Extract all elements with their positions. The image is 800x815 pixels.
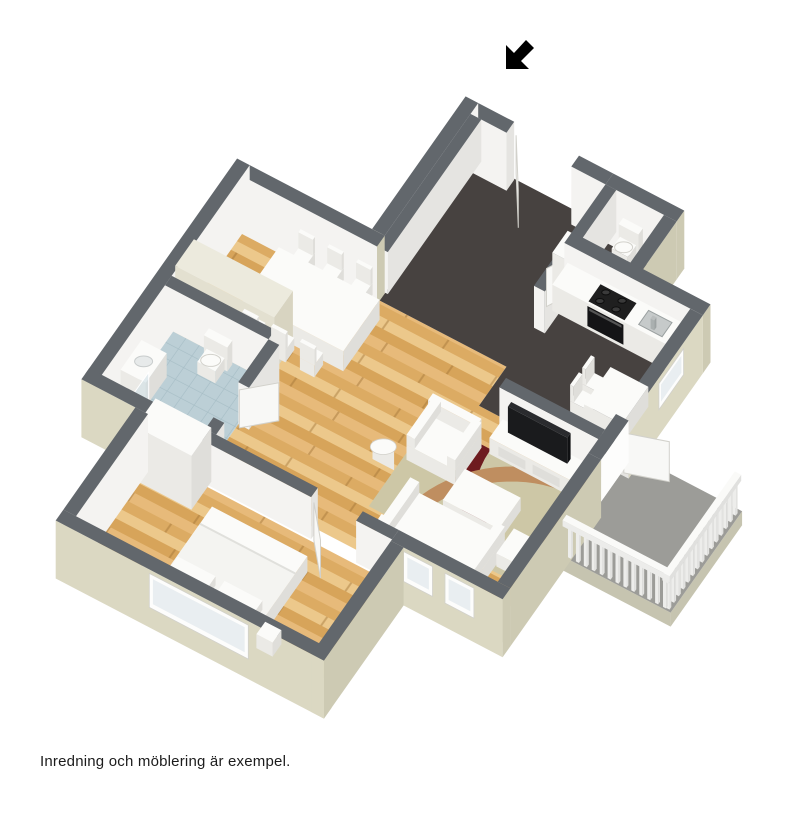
entrance-arrow-icon <box>506 40 534 69</box>
floorplan-stage: Inredning och möblering är exempel. <box>0 0 800 815</box>
bathroom-door-leaf <box>239 383 278 428</box>
balcony-door-leaf <box>624 433 670 482</box>
floorplan-3d-render <box>0 0 800 815</box>
disclaimer-caption: Inredning och möblering är exempel. <box>40 753 290 770</box>
